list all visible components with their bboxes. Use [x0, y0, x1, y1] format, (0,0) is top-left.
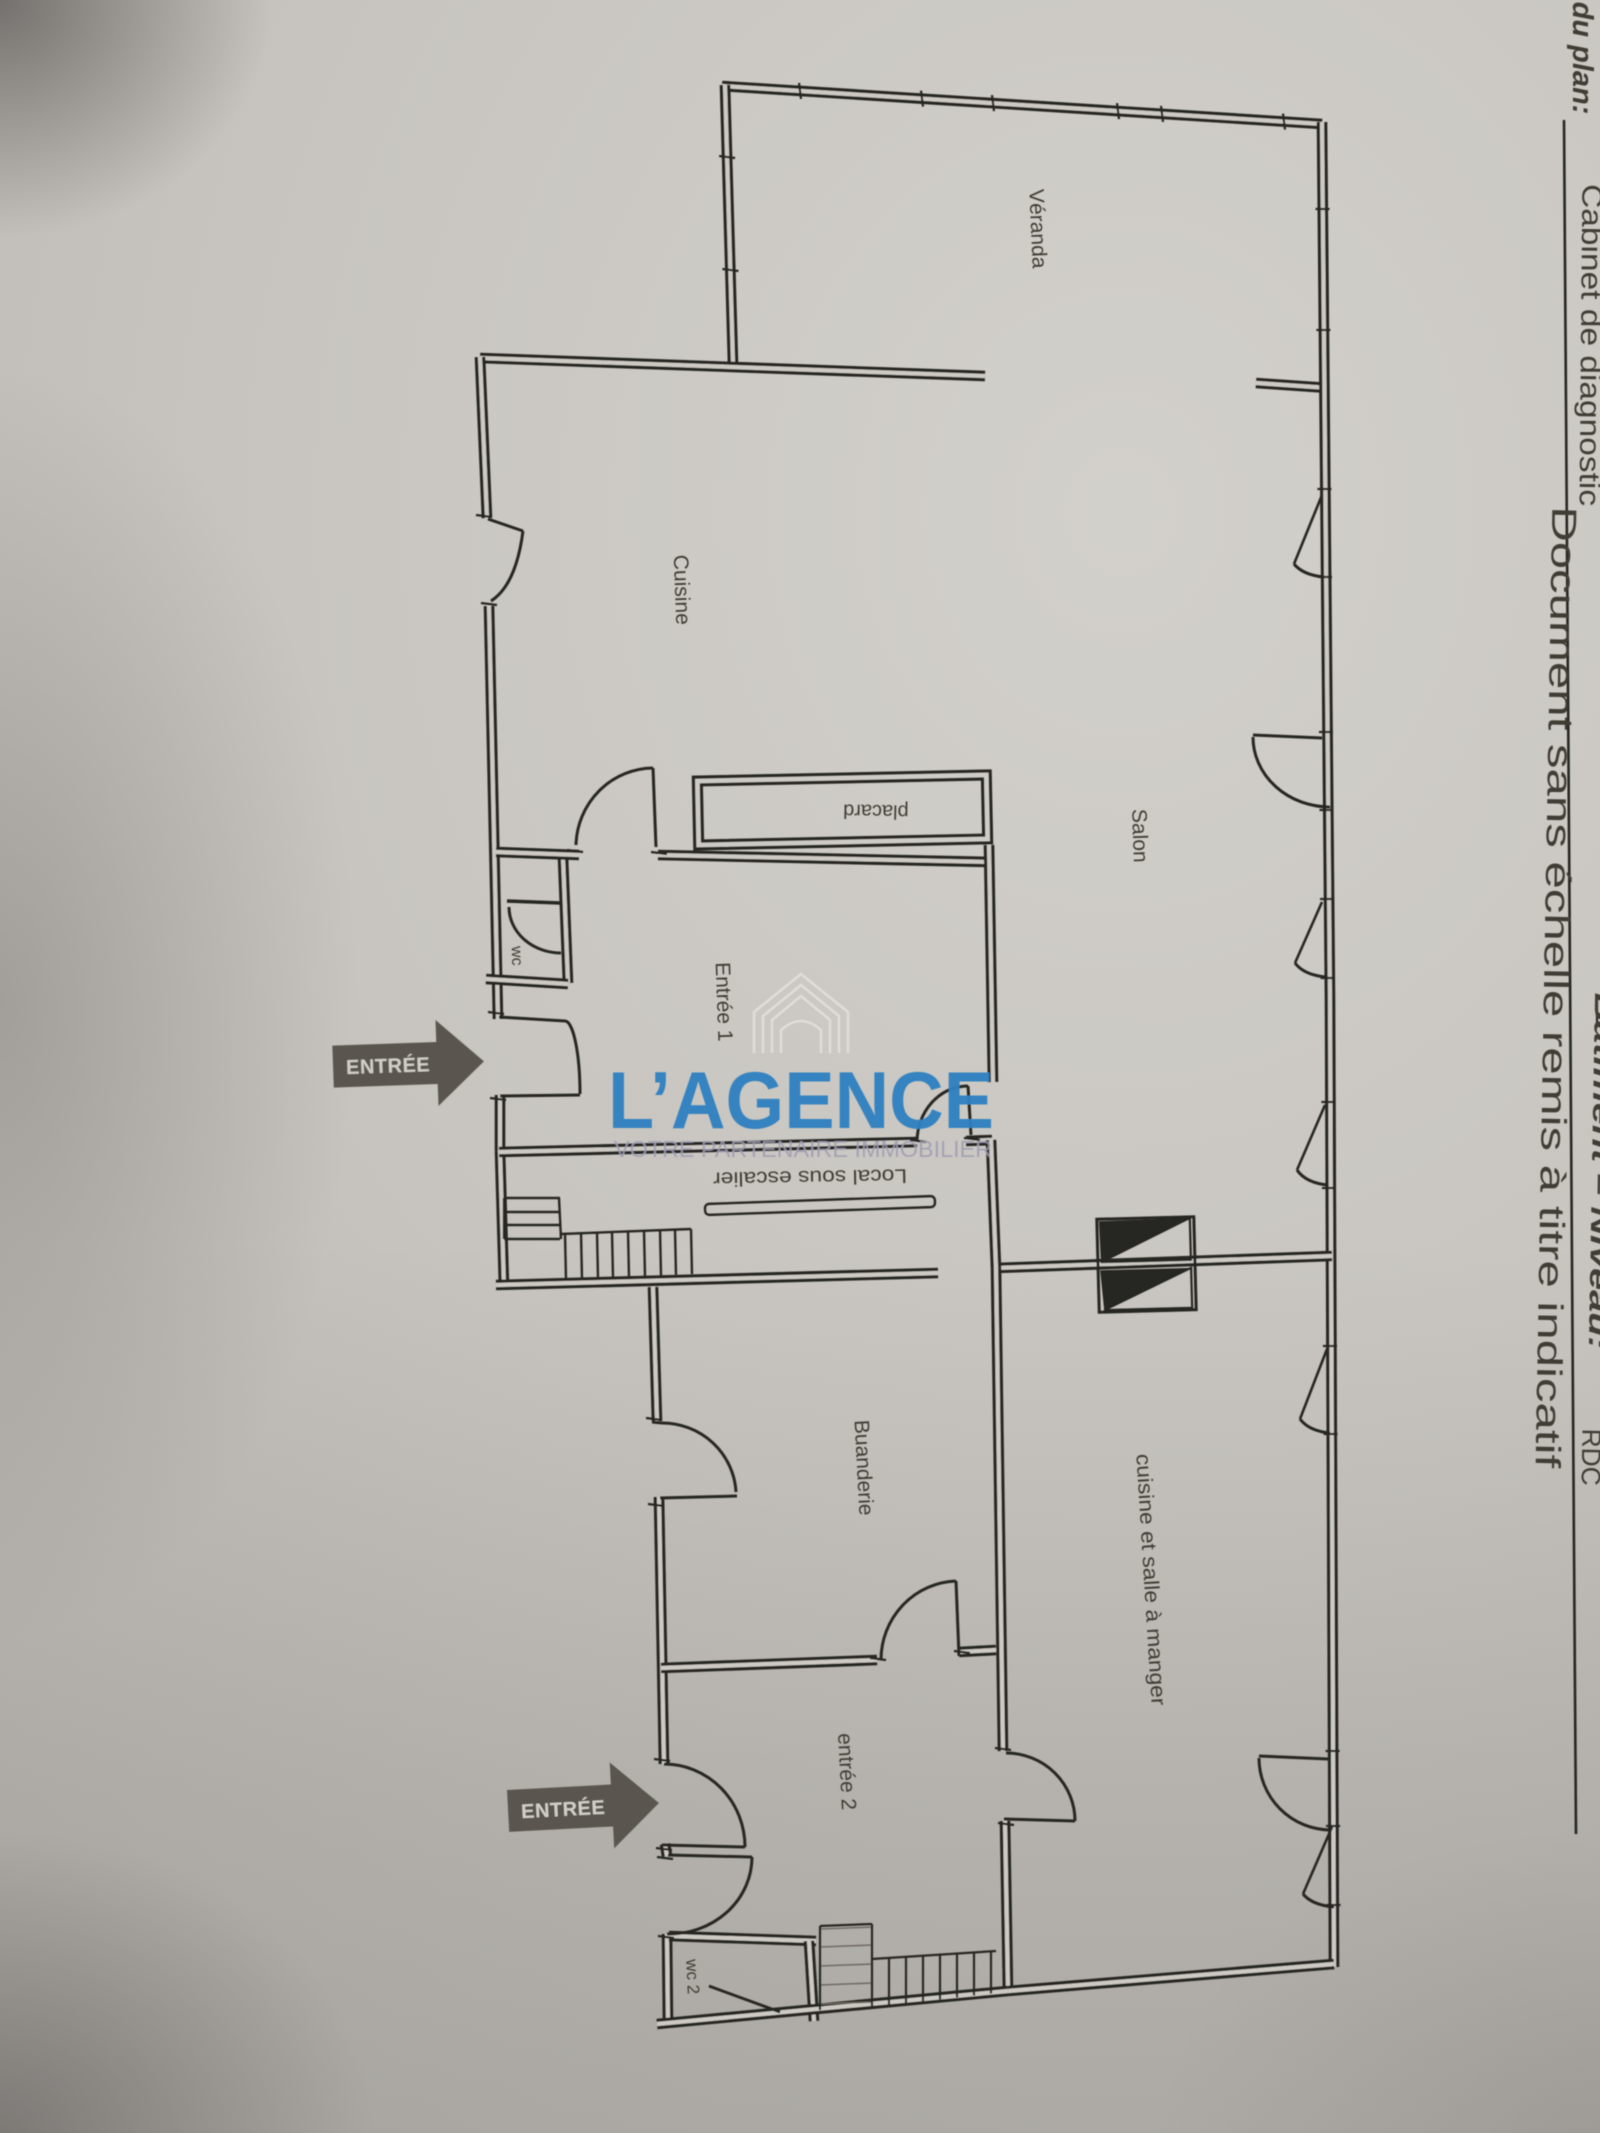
svg-text:Local sous escalier: Local sous escalier: [713, 1164, 908, 1189]
svg-text:Cabinet de diagnostic: Cabinet de diagnostic: [1573, 184, 1600, 506]
svg-text:Entrée 1: Entrée 1: [711, 962, 737, 1042]
svg-text:ENTRÉE: ENTRÉE: [346, 1053, 431, 1079]
svg-text:Document sans échelle remis à: Document sans échelle remis à titre indi…: [1528, 506, 1584, 1469]
svg-text:placard: placard: [843, 799, 909, 822]
svg-text:wc 2: wc 2: [682, 1958, 703, 1995]
svg-text:cuisine et salle à manger: cuisine et salle à manger: [1131, 1453, 1169, 1706]
svg-text:RDC: RDC: [1576, 1428, 1600, 1486]
svg-text:Bâtiment – Niveau:: Bâtiment – Niveau:: [1583, 992, 1600, 1349]
svg-text:ENTRÉE: ENTRÉE: [521, 1796, 606, 1823]
svg-text:Véranda: Véranda: [1024, 189, 1050, 270]
svg-text:entrée 2: entrée 2: [833, 1733, 860, 1811]
svg-text:du plan:: du plan:: [1566, 2, 1598, 115]
svg-text:Salon: Salon: [1127, 809, 1152, 863]
svg-text:L’AGENCE: L’AGENCE: [608, 1056, 994, 1146]
svg-text:Cuisine: Cuisine: [669, 554, 694, 625]
svg-text:wc: wc: [508, 945, 526, 966]
svg-text:VOTRE PARTENAIRE IMMOBILIER: VOTRE PARTENAIRE IMMOBILIER: [614, 1136, 992, 1162]
svg-text:Buanderie: Buanderie: [850, 1419, 878, 1516]
